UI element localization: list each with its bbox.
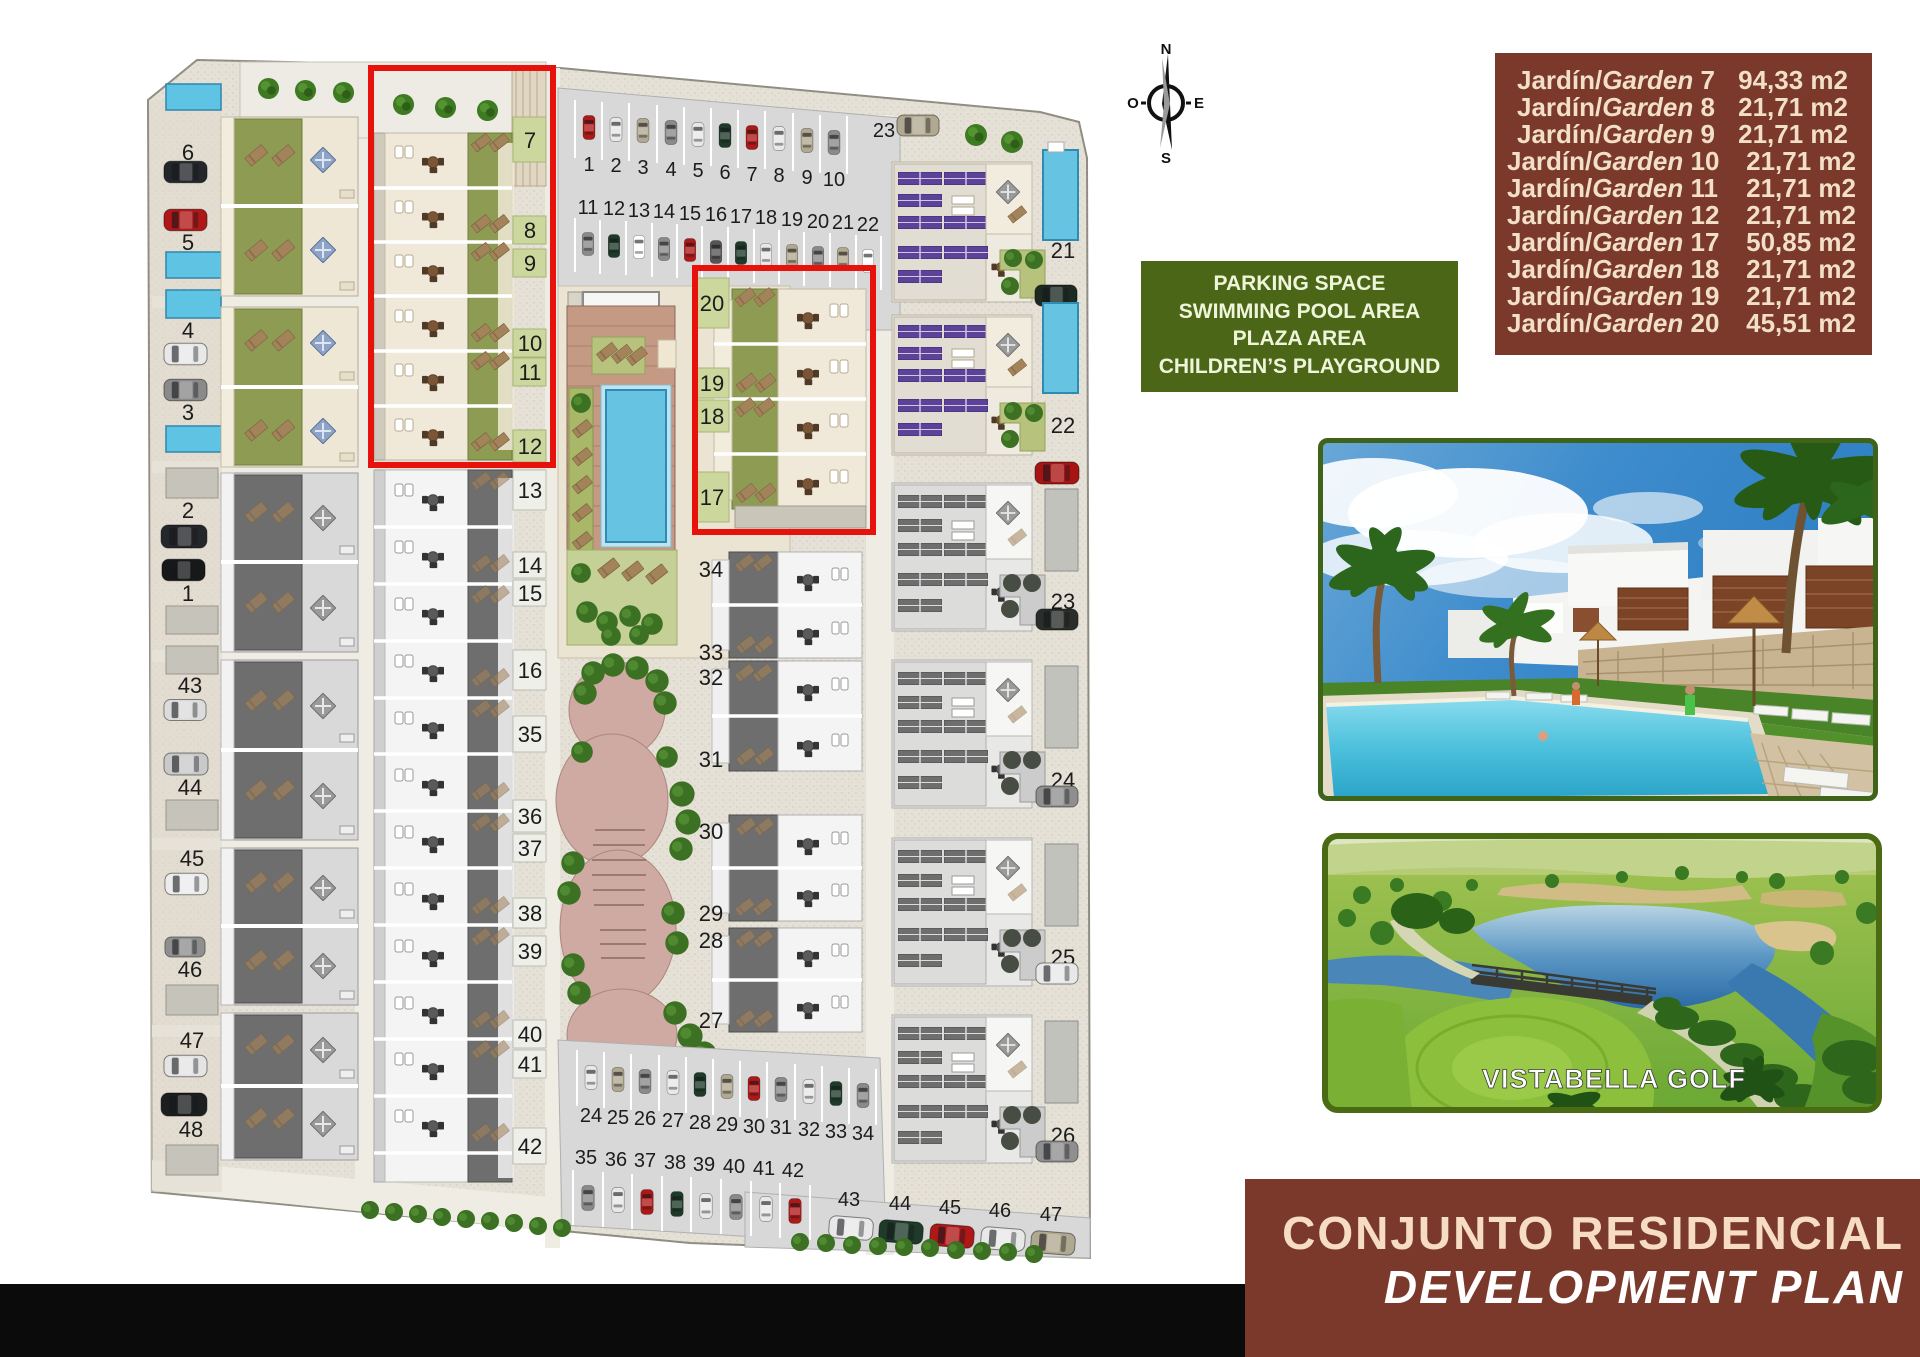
svg-text:37: 37 — [518, 836, 542, 861]
svg-text:33: 33 — [825, 1121, 847, 1143]
svg-text:29: 29 — [716, 1114, 738, 1136]
svg-text:36: 36 — [518, 804, 542, 829]
svg-text:28: 28 — [699, 928, 723, 953]
svg-text:5: 5 — [692, 160, 703, 182]
svg-text:45: 45 — [180, 846, 204, 871]
svg-text:7: 7 — [524, 128, 536, 153]
svg-text:19: 19 — [781, 209, 803, 231]
svg-text:22: 22 — [857, 214, 879, 236]
svg-text:32: 32 — [699, 665, 723, 690]
svg-text:2: 2 — [182, 498, 194, 523]
svg-text:31: 31 — [699, 747, 723, 772]
svg-text:27: 27 — [699, 1008, 723, 1033]
svg-text:5: 5 — [182, 230, 194, 255]
svg-text:28: 28 — [689, 1112, 711, 1134]
svg-text:35: 35 — [575, 1147, 597, 1169]
svg-text:30: 30 — [743, 1116, 765, 1138]
svg-text:17: 17 — [700, 485, 724, 510]
svg-text:42: 42 — [782, 1160, 804, 1182]
svg-text:15: 15 — [518, 581, 542, 606]
svg-text:19: 19 — [700, 371, 724, 396]
svg-text:39: 39 — [693, 1154, 715, 1176]
svg-text:22: 22 — [1051, 413, 1075, 438]
svg-text:41: 41 — [753, 1158, 775, 1180]
svg-text:16: 16 — [518, 658, 542, 683]
svg-text:42: 42 — [518, 1134, 542, 1159]
svg-text:9: 9 — [524, 251, 536, 276]
svg-text:34: 34 — [699, 557, 723, 582]
svg-text:47: 47 — [1040, 1204, 1062, 1226]
svg-text:3: 3 — [637, 157, 648, 179]
svg-text:4: 4 — [665, 159, 676, 181]
svg-text:10: 10 — [518, 331, 542, 356]
svg-text:18: 18 — [700, 404, 724, 429]
svg-text:35: 35 — [518, 722, 542, 747]
svg-text:10: 10 — [823, 169, 845, 191]
svg-text:18: 18 — [755, 207, 777, 229]
svg-text:30: 30 — [699, 819, 723, 844]
svg-text:37: 37 — [634, 1150, 656, 1172]
svg-text:14: 14 — [653, 201, 675, 223]
svg-text:26: 26 — [634, 1108, 656, 1130]
svg-text:21: 21 — [832, 212, 854, 234]
svg-text:8: 8 — [524, 218, 536, 243]
svg-text:34: 34 — [852, 1123, 874, 1145]
svg-text:47: 47 — [180, 1028, 204, 1053]
svg-text:8: 8 — [773, 165, 784, 187]
svg-text:14: 14 — [518, 553, 542, 578]
svg-text:1: 1 — [583, 154, 594, 176]
svg-text:24: 24 — [580, 1105, 602, 1127]
svg-text:36: 36 — [605, 1149, 627, 1171]
svg-text:40: 40 — [518, 1022, 542, 1047]
svg-text:6: 6 — [719, 162, 730, 184]
svg-text:39: 39 — [518, 939, 542, 964]
svg-text:15: 15 — [679, 203, 701, 225]
svg-text:25: 25 — [607, 1107, 629, 1129]
svg-text:41: 41 — [518, 1052, 542, 1077]
svg-text:43: 43 — [838, 1189, 860, 1211]
svg-text:12: 12 — [518, 434, 542, 459]
svg-text:20: 20 — [807, 211, 829, 233]
svg-text:9: 9 — [801, 167, 812, 189]
svg-text:44: 44 — [889, 1193, 911, 1215]
svg-text:3: 3 — [182, 400, 194, 425]
svg-text:38: 38 — [518, 901, 542, 926]
svg-text:4: 4 — [182, 318, 194, 343]
svg-text:45: 45 — [939, 1197, 961, 1219]
svg-text:43: 43 — [178, 673, 202, 698]
svg-text:44: 44 — [178, 775, 202, 800]
svg-text:31: 31 — [770, 1117, 792, 1139]
svg-text:23: 23 — [873, 120, 895, 142]
svg-text:VISTABELLA GOLF: VISTABELLA GOLF — [1482, 1064, 1746, 1094]
svg-text:2: 2 — [610, 155, 621, 177]
svg-text:46: 46 — [178, 957, 202, 982]
svg-text:20: 20 — [700, 291, 724, 316]
svg-text:1: 1 — [182, 581, 194, 606]
svg-text:11: 11 — [578, 197, 599, 219]
svg-text:29: 29 — [699, 901, 723, 926]
svg-text:38: 38 — [664, 1152, 686, 1174]
svg-text:48: 48 — [179, 1117, 203, 1142]
svg-text:13: 13 — [628, 200, 650, 222]
svg-text:21: 21 — [1051, 238, 1075, 263]
svg-text:6: 6 — [182, 140, 194, 165]
svg-text:13: 13 — [518, 478, 542, 503]
svg-text:32: 32 — [798, 1119, 820, 1141]
svg-text:33: 33 — [699, 640, 723, 665]
svg-text:7: 7 — [746, 164, 757, 186]
svg-text:46: 46 — [989, 1200, 1011, 1222]
svg-text:11: 11 — [519, 360, 542, 385]
svg-text:12: 12 — [603, 198, 625, 220]
svg-text:40: 40 — [723, 1156, 745, 1178]
svg-text:27: 27 — [662, 1110, 684, 1132]
svg-text:16: 16 — [705, 204, 727, 226]
svg-text:17: 17 — [730, 206, 752, 228]
